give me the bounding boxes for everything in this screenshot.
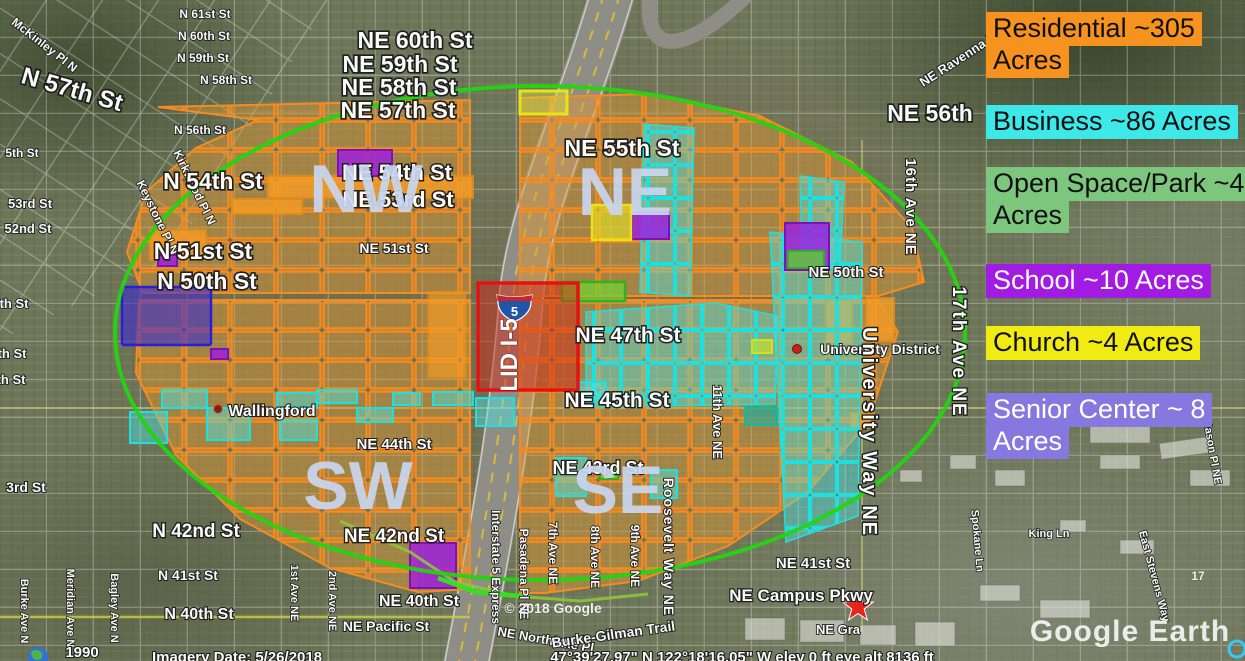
map-label: NE	[578, 154, 672, 230]
wallingford-place-pin	[214, 405, 222, 413]
map-label: N 40th St	[164, 606, 234, 623]
map-label: N 51st St	[154, 238, 253, 264]
map-label: SW	[303, 448, 413, 524]
map-label: th St	[0, 296, 29, 311]
map-label: NE Pacific St	[343, 618, 430, 634]
building	[915, 622, 955, 646]
map-label: 16th Ave NE	[902, 158, 919, 255]
map-label: Wallingford	[228, 403, 315, 420]
map-label: N 50th St	[157, 268, 257, 294]
church-parcel	[520, 91, 567, 114]
map-label: th St	[0, 372, 26, 387]
map-label: 8th Ave NE	[588, 526, 602, 588]
map-label: th St	[0, 346, 27, 361]
university-district-place-pin	[793, 345, 802, 354]
map-label: 52nd St	[5, 221, 53, 236]
map-label: © 2018 Google	[504, 600, 602, 616]
map-label: N 41st St	[158, 567, 218, 583]
map-label: Meridian Ave N	[64, 569, 76, 648]
map-label: N 54th St	[163, 168, 263, 194]
building	[980, 585, 1020, 601]
map-label: Bagley Ave N	[108, 573, 120, 643]
map-label: N 61st St	[179, 7, 230, 21]
business-parcel	[476, 398, 514, 426]
building	[860, 625, 896, 645]
business-parcel	[280, 420, 317, 440]
map-label: University Way NE	[858, 327, 880, 537]
shield-number: 5	[511, 304, 518, 319]
map-label: 5th St	[5, 146, 38, 160]
open-space-parcel	[745, 407, 777, 425]
map-label: Interstate 5 Express	[489, 510, 503, 624]
building	[950, 455, 976, 469]
map-label: 17th Ave NE	[948, 286, 969, 417]
map-label: Roosevelt Way NE	[661, 478, 677, 616]
map-label: NE 42nd St	[344, 526, 445, 547]
business-parcel	[317, 390, 357, 403]
map-canvas[interactable]: 5 N 61st StN 60th St	[0, 0, 1245, 661]
map-label: Burke Ave N	[18, 579, 30, 644]
map-label: NE 57th St	[340, 97, 455, 123]
church-parcel	[752, 340, 772, 353]
map-label: 47°39'27.97" N 122°18'16.05" W elev 0 ft…	[550, 649, 934, 661]
map-label: 1990	[65, 644, 98, 661]
building	[1100, 455, 1140, 469]
map-label: NE 51st St	[359, 240, 429, 256]
building	[995, 470, 1025, 486]
map-label: 3rd St	[6, 479, 46, 495]
map-label: NE Campus Pkwy	[729, 586, 873, 605]
building	[745, 618, 785, 640]
map-label: LID I-5	[496, 318, 523, 391]
map-label: N 59th St	[177, 51, 229, 65]
map-label: N 60th St	[178, 29, 230, 43]
business-parcel	[357, 408, 393, 422]
business-parcel	[393, 393, 420, 405]
google-earth-map-view[interactable]: 5 N 61st StN 60th St	[0, 0, 1245, 661]
map-label: 17	[1191, 569, 1205, 583]
map-label: NE Gra	[816, 622, 861, 637]
map-label: Imagery Date: 5/26/2018	[152, 649, 322, 661]
map-label: SE	[573, 452, 664, 528]
residential-parcel	[428, 292, 466, 378]
map-label: NE 41st St	[776, 555, 850, 572]
business-parcel	[162, 390, 207, 408]
map-label: 11th Ave NE	[710, 385, 725, 460]
map-label: NE 60th St	[357, 27, 472, 53]
building	[900, 470, 922, 482]
map-label: NE 47th St	[575, 324, 680, 347]
map-label: 1st Ave NE	[288, 565, 300, 622]
map-label: 2nd Ave NE	[326, 571, 338, 631]
residential-parcel	[232, 199, 302, 214]
map-label: 9th Ave NE	[628, 525, 642, 587]
map-label: 53rd St	[8, 196, 53, 211]
map-label: N 56th St	[174, 123, 226, 137]
lid-i5-zone: 5	[478, 283, 578, 390]
map-label: NE 56th	[887, 100, 973, 126]
map-label: N 42nd St	[152, 521, 240, 542]
map-label: NE 50th St	[808, 264, 883, 281]
map-label: NE 40th St	[379, 593, 460, 610]
school-campus-parcel	[122, 287, 211, 345]
map-label: King Ln	[1029, 528, 1070, 540]
building	[1090, 425, 1150, 443]
map-label: N 58th St	[200, 73, 252, 87]
business-parcel	[433, 392, 473, 405]
school-parcel	[211, 349, 228, 359]
map-label: Google Earth	[1030, 615, 1230, 648]
map-label: NW	[309, 151, 423, 227]
map-label: 7th Ave NE	[546, 522, 560, 584]
map-label: NE 45th St	[564, 389, 669, 412]
